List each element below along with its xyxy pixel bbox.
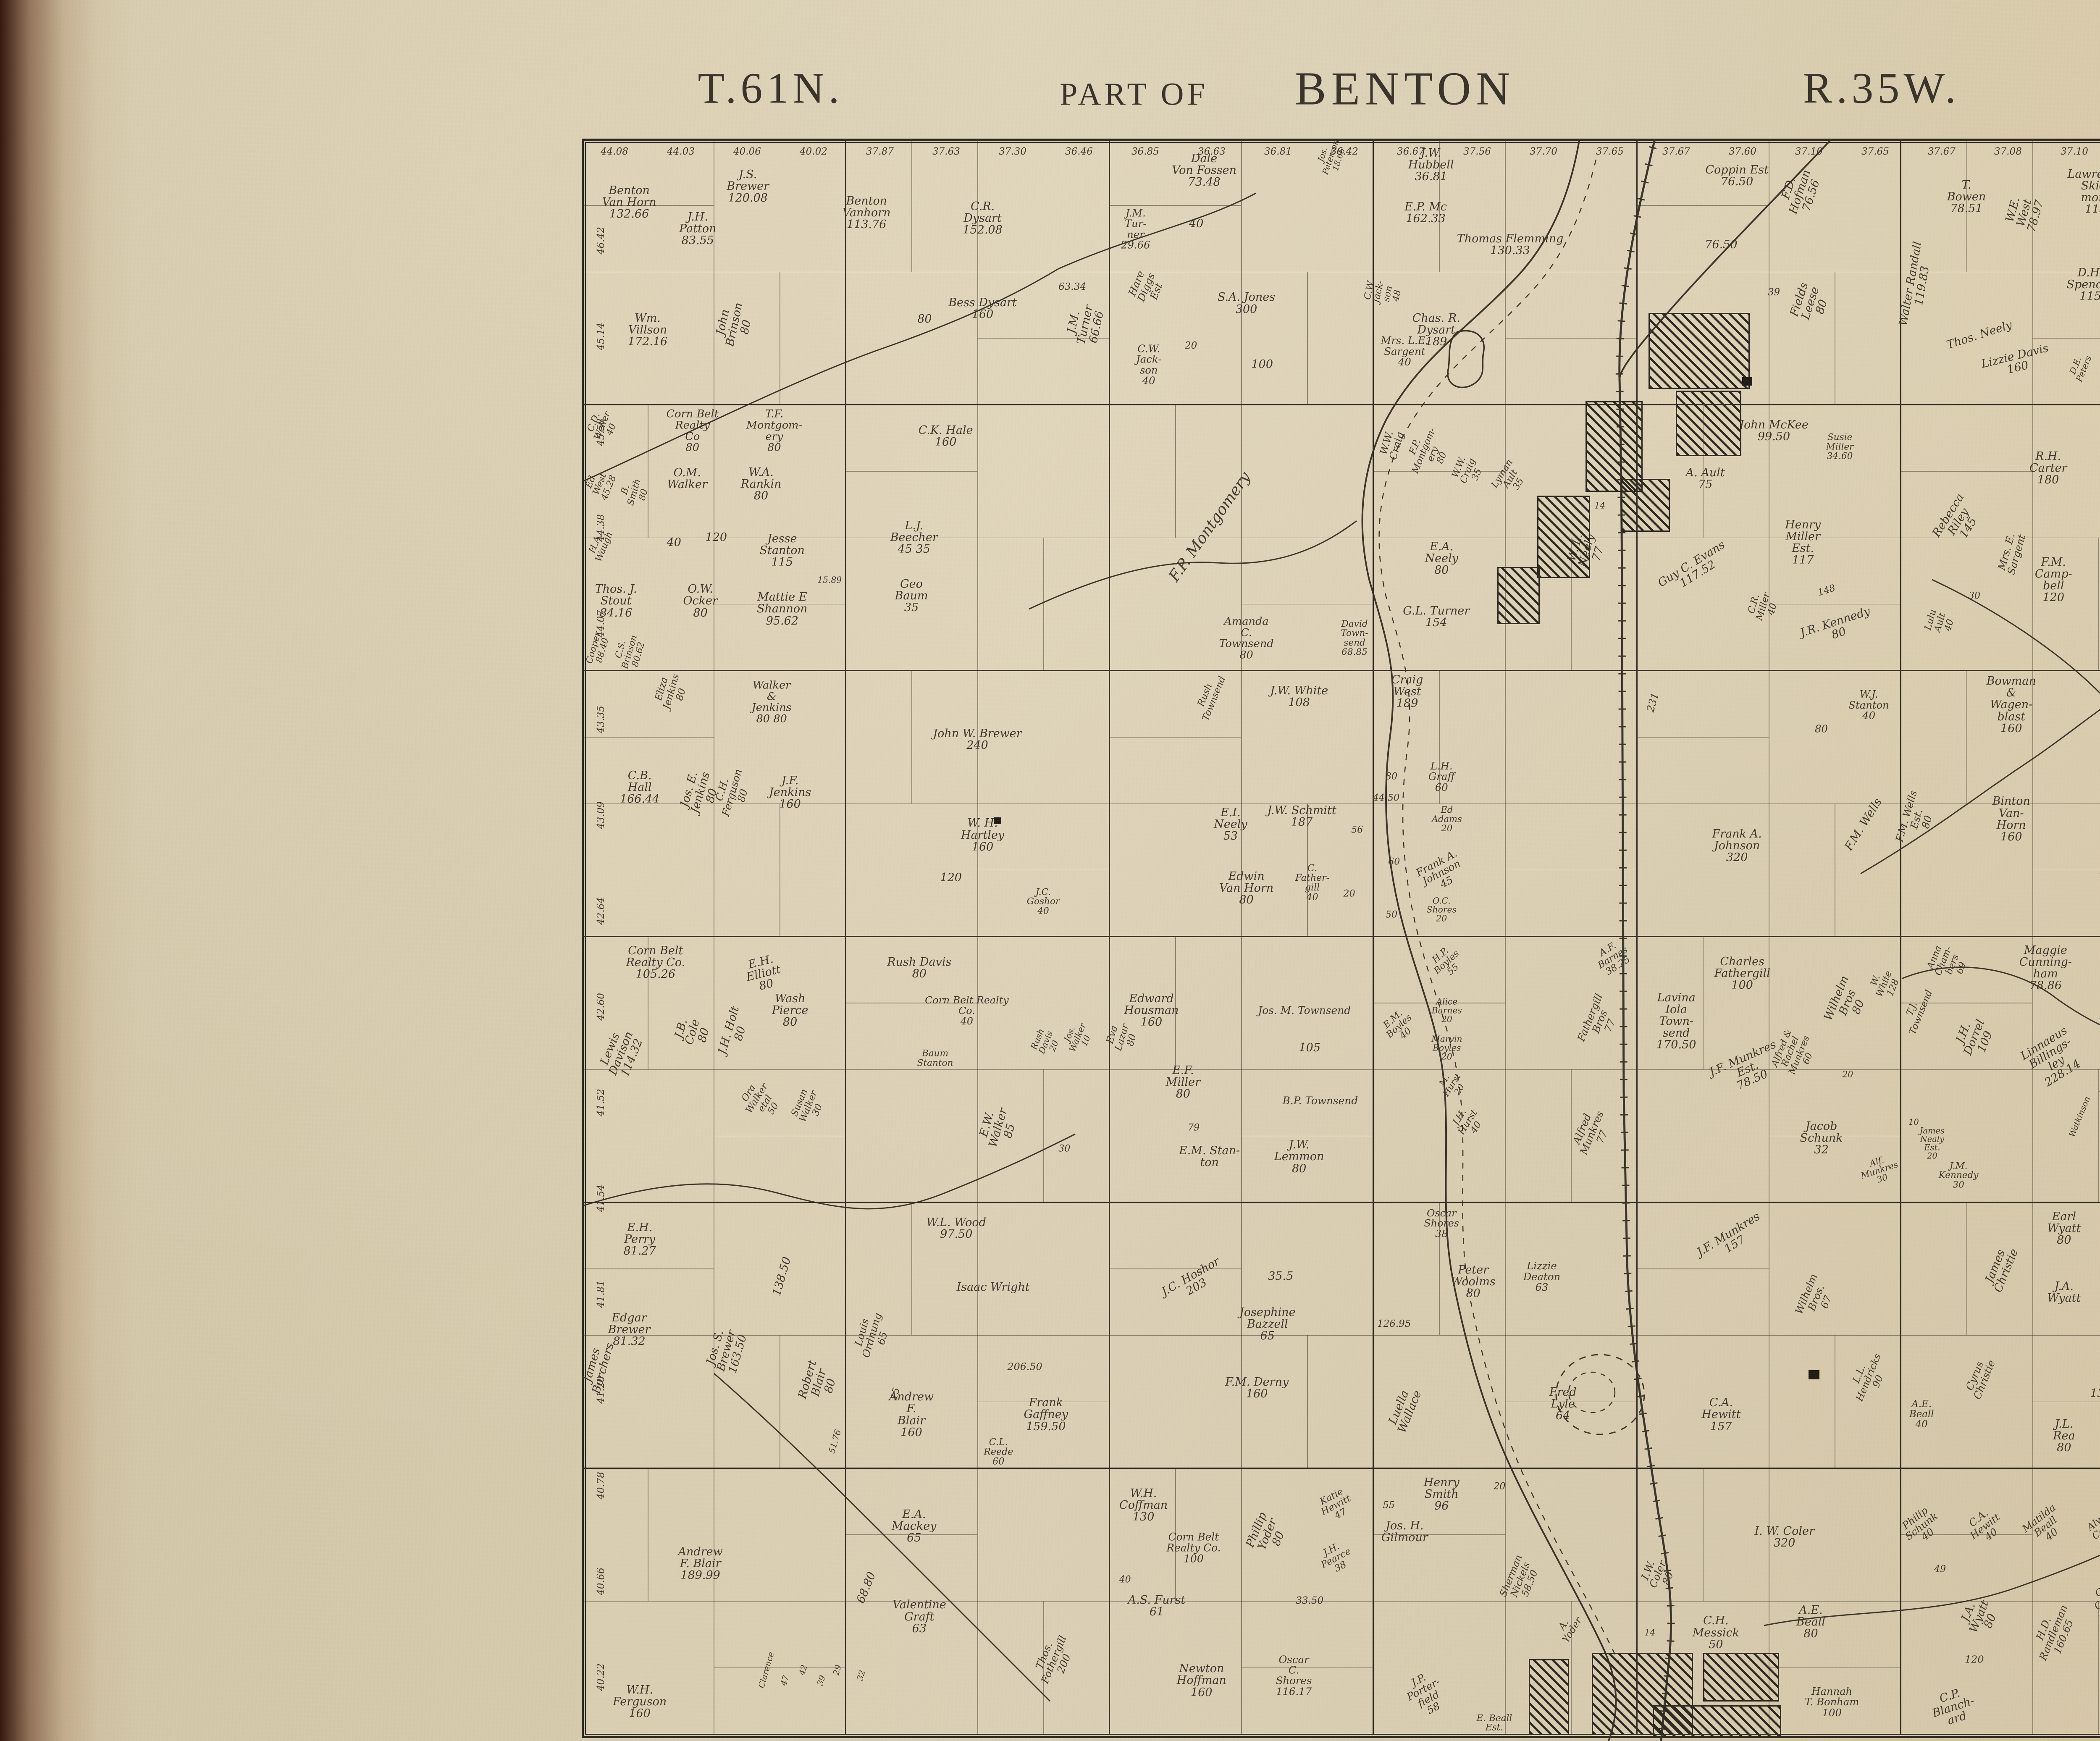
quarter-line [1241,604,1373,605]
parcel-label: 100 [1251,359,1273,370]
parcel-label: Jos. M. Townsend [1258,1005,1351,1016]
town-block-hatched [1653,1705,1781,1737]
parcel-label: Frank A. Johnson 320 [1712,828,1762,864]
parcel-label: 120 [940,872,962,884]
quarter-line [1703,1468,1704,1601]
edge-acreage-top: 37.87 [866,146,894,157]
parcel-label: Corn Belt Realty Co 80 [667,409,719,454]
parcel-label: C.B. Hall 166.44 [620,769,659,805]
parcel-label: F.M. Derny 160 [1225,1376,1289,1400]
parcel-label: Thomas Flemming 130.33 [1457,233,1564,257]
parcel-label: 50 [1386,910,1397,920]
creek-path [714,1373,1050,1701]
parcel-label: Alice Barnes 20 [1432,998,1462,1024]
edge-acreage-top: 40.06 [733,146,761,157]
quarter-line [2032,338,2100,339]
quarter-line [582,737,714,738]
parcel-label: 30 [1058,1144,1070,1154]
quarter-line [1175,404,1176,538]
parcel-label: A. Ault 75 [1686,467,1725,491]
quarter-line [1637,804,1900,804]
town-block-hatched [1529,1659,1569,1735]
parcel-label: Amanda C. Townsend 80 [1219,616,1273,661]
parcel-label: 134 [2090,1388,2100,1400]
edge-acreage-left: 41.52 [596,1089,606,1116]
parcel-label: Jesse Stanton 115 [760,533,805,568]
quarter-line [845,1601,1109,1602]
parcel-label: Benton Vanhorn 113.76 [843,195,890,231]
parcel-label: 14 [1594,501,1605,510]
parcel-label: Andrew F. Blair 160 [889,1391,934,1438]
parcel-label: Jos. H. Gilmour [1381,1520,1428,1544]
quarter-line [1769,1667,1900,1668]
parcel-label: O.M. Walker [667,467,707,491]
quarter-line [1109,737,1241,738]
parcel-label: 80 [1386,772,1397,782]
parcel-label: Mrs. L.E. Sargent 40 [1381,335,1428,367]
quarter-line [1307,1335,1308,1468]
parcel-label: Hannah T. Bonham 100 [1805,1686,1859,1718]
edge-acreage-left: 44.38 [596,514,606,542]
parcel-label: Corn Belt Realty Co. 100 [1166,1531,1221,1564]
town-block-hatched [1703,1653,1779,1702]
parcel-label: 49 [1934,1564,1946,1574]
building-marker [1742,377,1752,386]
parcel-label: Oscar C. Shores 116.17 [1276,1654,1312,1696]
edge-acreage-top: 37.65 [1596,146,1624,157]
parcel-label: 120 [1965,1654,1984,1665]
quarter-line [845,272,1109,273]
edge-acreage-left: 44.07 [596,610,606,638]
quarter-line [2098,538,2099,671]
edge-acreage-left: 41.81 [596,1280,606,1308]
parcel-label: J.H. Patton 83.55 [679,211,716,247]
parcel-label: 15.89 [817,575,842,584]
map-linework [0,0,2100,1741]
quarter-line [1900,1335,2100,1336]
parcel-label: 20 [1494,1482,1505,1492]
parcel-label: W.H. Ferguson 160 [613,1684,667,1720]
quarter-line [1637,737,1769,738]
edge-acreage-top: 37.65 [1861,146,1889,157]
section-grid-line [1636,139,1638,1734]
quarter-line [2032,1402,2100,1402]
parcel-label: D.H. Spencer 115 [2067,267,2100,302]
quarter-line [1373,272,1637,273]
town-block-hatched [1585,401,1643,492]
parcel-label: C.A. Hewitt 157 [1701,1397,1740,1432]
parcel-label: C.R. Dysart 152.08 [963,201,1002,236]
edge-acreage-left: 42.64 [596,897,606,925]
edge-acreage-left: 45.14 [596,323,606,350]
parcel-label: E.P. Mc 162.33 [1404,201,1447,225]
parcel-label: 55 [1383,1500,1395,1510]
parcel-label: 44.50 [1373,793,1399,803]
parcel-label: Corn Belt Realty Co. 40 [925,995,1009,1026]
parcel-label: Valentine Graft 63 [892,1599,946,1634]
quarter-line [648,404,648,538]
parcel-label: Maggie Cunning- ham 78.86 [2019,945,2072,992]
quarter-line [911,139,912,272]
edge-acreage-top: 37.60 [1729,146,1756,157]
section-grid-line [582,670,2100,671]
parcel-label: E.F. Miller 80 [1166,1065,1200,1100]
parcel-label: Bess Dysart 160 [948,297,1017,320]
quarter-line [648,1468,648,1601]
parcel-label: E.I. Neely 53 [1214,807,1247,842]
quarter-line [845,538,1109,538]
parcel-label: J.C. Goshor 40 [1027,888,1060,916]
town-block-hatched [1621,479,1670,532]
quarter-line [977,870,1109,871]
parcel-label: 10 [1908,1118,1919,1127]
edge-acreage-left: 46.42 [596,227,606,255]
parcel-label: J.M. Tur- ner 29.66 [1121,208,1150,250]
town-block-hatched [1676,391,1741,456]
quarter-line [714,1667,845,1668]
parcel-label: B.P. Townsend [1283,1096,1358,1107]
edge-acreage-left: 42.60 [596,993,606,1021]
parcel-label: C. Father- gill 40 [1295,864,1329,902]
parcel-label: Peter Woolms 80 [1451,1264,1496,1300]
parcel-label: 63.34 [1058,283,1086,293]
edge-acreage-left: 43.35 [596,706,606,733]
parcel-label: 40 [667,537,681,549]
parcel-label: Edwin Van Horn 80 [1219,871,1273,906]
parcel-label: W.L. Wood 97.50 [927,1217,986,1240]
parcel-label: J.W. Lemmon 80 [1274,1139,1324,1174]
parcel-label: E. Beall Est. [1476,1714,1512,1733]
quarter-line [1637,1601,1900,1602]
parcel-label: 33.50 [1296,1596,1323,1606]
parcel-label: 105 [1299,1042,1320,1054]
parcel-label: 80 [1815,724,1828,734]
parcel-label: J.L. Rea 80 [2053,1418,2075,1454]
parcel-label: Ed Adams 20 [1432,806,1462,833]
parcel-label: Jacob Schunk 32 [1800,1121,1843,1156]
parcel-label: A.S. Furst 61 [1128,1594,1186,1618]
edge-acreage-top: 37.67 [1928,146,1956,157]
parcel-label: 79 [1188,1123,1200,1132]
parcel-label: E.A. Neely 80 [1425,541,1458,576]
parcel-label: E.M. Stan- ton [1179,1145,1240,1169]
section-grid-line [1900,139,1901,1734]
parcel-label: 20 [1343,889,1355,898]
edge-acreage-top: 37.10 [2061,146,2088,157]
quarter-line [1373,1335,1637,1336]
parcel-label: Bowman & Wagen- blast 160 [1987,675,2036,734]
section-grid-line [582,1468,2100,1469]
parcel-label: T.F. Montgom- ery 80 [746,409,802,454]
parcel-label: W.A. Rankin 80 [741,467,782,502]
section-grid-line [582,1202,2100,1203]
parcel-label: Edward Housman 160 [1124,993,1179,1028]
parcel-label: J.W. Schmitt 187 [1267,805,1336,828]
parcel-label: 39 [1768,288,1780,298]
parcel-label: Craig West 189 [1391,674,1423,709]
quarter-line [1966,670,1967,804]
parcel-label: J.A. Wyatt [2047,1281,2081,1304]
parcel-label: Coppin Est 76.50 [1705,164,1769,188]
quarter-line [1505,870,1637,871]
parcel-label: Benton Van Horn 132.66 [602,185,656,220]
building-marker [1809,1370,1819,1379]
parcel-label: John W. Brewer 240 [933,728,1021,751]
parcel-label: Oscar Shores 38 [1424,1208,1459,1239]
quarter-line [582,1601,845,1602]
parcel-label: A.E. Beall 80 [1796,1604,1825,1640]
edge-acreage-left: 45.58 [596,418,606,446]
parcel-label: Edgar Brewer 81.32 [608,1312,651,1347]
parcel-label: 80 [917,313,932,325]
edge-acreage-top: 36.81 [1264,146,1292,157]
parcel-label: 20 [1843,1070,1853,1079]
parcel-label: A.E. Beall 40 [1909,1400,1934,1430]
parcel-label: 40 [1189,218,1203,230]
edge-acreage-top: 44.08 [601,146,628,157]
parcel-label: E.H. Perry 81.27 [624,1221,656,1257]
quarter-line [1835,1335,1835,1468]
edge-acreage-top: 36.46 [1065,146,1093,157]
edge-acreage-top: 36.63 [1198,146,1226,157]
parcel-label: Corn Belt Realty Co. 105.26 [626,945,685,980]
parcel-label: S.A. Jones 300 [1218,291,1275,315]
quarter-line [714,1136,845,1137]
edge-acreage-top: 37.63 [932,146,960,157]
building-marker [994,817,1001,824]
quarter-line [1900,538,2100,538]
parcel-label: C.K. Hale 160 [919,425,973,448]
section-grid-line [582,936,2100,937]
quarter-line [911,670,912,804]
parcel-label: 60 [1388,857,1400,867]
parcel-label: Marvin Boyles 20 [1431,1035,1462,1061]
parcel-label: F.M. Camp- bell 120 [2035,557,2072,604]
quarter-line [1109,538,1373,538]
quarter-line [845,804,1109,804]
town-block-hatched [1497,567,1540,624]
edge-acreage-left: 40.22 [596,1663,606,1691]
parcel-label: Lizzie Deaton 63 [1523,1260,1560,1292]
parcel-label: Fred Lyle 64 [1549,1386,1577,1422]
edge-acreage-top: 40.02 [800,146,827,157]
parcel-label: Binton Van- Horn 160 [1992,796,2030,843]
creek-path [1861,672,2100,874]
parcel-label: Josephine Bazzell 65 [1239,1307,1296,1342]
quarter-line [1637,538,1900,538]
parcel-label: C.W. Jack- son 40 [1136,344,1161,386]
plat-map-page: T.61N. PART OF BENTON R.35W. And [0,0,2100,1741]
quarter-line [1241,1136,1373,1137]
edge-acreage-top: 36.85 [1131,146,1159,157]
quarter-line [2098,1601,2099,1734]
parcel-label: 76.50 [1705,239,1737,251]
parcel-label: John McKee 99.50 [1739,419,1809,443]
quarter-line [1505,338,1637,339]
edge-acreage-top: 37.67 [1662,146,1690,157]
quarter-line [1043,1069,1044,1203]
quarter-line [1769,604,1900,605]
quarter-line [1373,804,1637,804]
parcel-label: Henry Smith 96 [1424,1477,1459,1512]
edge-acreage-top: 37.56 [1463,146,1491,157]
edge-acreage-top: 36.67 [1397,146,1425,157]
quarter-line [1835,272,1835,405]
town-block-hatched [1648,313,1750,389]
parcel-label: Newton Hoffman 160 [1177,1663,1226,1698]
quarter-line [1966,1202,1967,1335]
town-block-hatched [1537,496,1590,578]
parcel-label: Walker & Jenkins 80 80 [751,680,791,725]
section-grid-line [582,404,2100,405]
quarter-line [1373,1069,1637,1070]
edge-acreage-left: 40.78 [596,1472,606,1499]
parcel-label: Earl Wyatt 80 [2047,1211,2081,1246]
quarter-line [1109,205,1241,206]
quarter-line [582,272,845,273]
quarter-line [1307,272,1308,405]
parcel-label: C.L. Reede 60 [984,1437,1013,1466]
edge-acreage-top: 37.30 [999,146,1026,157]
quarter-line [1571,1069,1572,1203]
quarter-line [1637,272,1900,273]
quarter-line [1900,1601,2100,1602]
parcel-label: Henry Miller Est. 117 [1785,519,1821,566]
parcel-label: O.C. Shores 20 [1427,896,1457,923]
quarter-line [582,1268,714,1269]
quarter-line [1637,205,1769,206]
parcel-label: Lavina Iola Town- send 170.50 [1656,992,1696,1050]
edge-acreage-left: 41.54 [596,1184,606,1212]
parcel-label: J.S. Brewer 120.08 [727,169,769,204]
parcel-label: W.H. Coffman 130 [1119,1487,1168,1523]
parcel-label: Isaac Wright [957,1281,1030,1293]
parcel-label: L.J. Beecher 45 35 [890,520,938,555]
parcel-label: Wash Pierce 80 [772,993,808,1028]
edge-acreage-left: 43.09 [596,801,606,829]
parcel-label: T. Bowen 78.51 [1947,179,1986,215]
parcel-label: Baum Stanton [917,1049,953,1068]
quarter-line [1637,1335,1900,1336]
quarter-line [1703,936,1704,1069]
parcel-label: Lawrence Skid- more 118 [2067,168,2100,215]
quarter-line [1109,1069,1373,1070]
parcel-label: Rush Davis 80 [887,956,951,980]
quarter-line [1835,804,1835,937]
parcel-label: C.H. Messick 50 [1693,1615,1739,1650]
parcel-label: 35.5 [1268,1271,1293,1282]
parcel-label: Dale Von Fossen 73.48 [1172,153,1236,188]
parcel-label: 56 [1351,825,1363,835]
river-path [1362,141,1616,1741]
quarter-line [2032,870,2100,871]
edge-acreage-top: 44.03 [667,146,695,157]
parcel-label: 120 [705,531,727,543]
quarter-line [780,804,780,937]
parcel-label: O.W. Ocker 80 [683,583,718,619]
edge-acreage-top: 37.70 [1530,146,1557,157]
parcel-label: 206.50 [1007,1362,1042,1372]
parcel-label: Susie Miller 34.60 [1826,433,1854,461]
parcel-label: Andrew F. Blair 189.99 [678,1546,723,1581]
parcel-label: J.M. Kennedy 30 [1939,1161,1979,1190]
parcel-label: Wm. Villson 172.16 [628,312,667,348]
quarter-line [780,1335,780,1468]
parcel-label: G.L. Turner 154 [1403,605,1470,629]
parcel-label: 14 [1645,1628,1656,1637]
quarter-line [1043,538,1044,671]
edge-acreage-top: 37.08 [1994,146,2022,157]
quarter-line [845,1069,1109,1070]
edge-acreage-left: 41.20 [596,1376,606,1404]
parcel-label: 30 [1969,591,1980,601]
parcel-label: W.J. Stanton 40 [1848,689,1889,721]
quarter-line [1900,471,2032,472]
parcel-label: L.H. Graff 60 [1428,761,1455,793]
parcel-label: 40 [1119,1575,1131,1584]
parcel-label: E.A. Mackey 65 [892,1509,936,1544]
quarter-line [1637,1268,1769,1269]
quarter-line [1373,1601,1637,1602]
parcel-label: 126.95 [1377,1319,1411,1329]
quarter-line [911,1202,912,1335]
edge-acreage-top: 36.42 [1331,146,1358,157]
parcel-label: J.F. Jenkins 160 [769,775,811,810]
edge-acreage-top: 37.10 [1795,146,1823,157]
parcel-label: Frank Gaffney 159.50 [1024,1397,1068,1432]
quarter-line [780,272,780,405]
parcel-label: David Town- send 68.85 [1341,620,1368,657]
quarter-line [845,471,977,472]
parcel-label: R.H. Carter 180 [2029,451,2067,486]
parcel-label: Charles Fathergill 100 [1714,956,1770,991]
parcel-label: Geo Baum 35 [895,578,928,614]
parcel-label: I. W. Coler 320 [1754,1526,1814,1549]
parcel-label: 20 [1185,341,1197,351]
parcel-label: J.W. White 108 [1270,685,1328,709]
parcel-label: James Nealy Est. 20 [1920,1127,1945,1161]
edge-acreage-left: 40.66 [596,1568,606,1595]
parcel-label: Mattie E Shannon 95.62 [757,591,807,627]
